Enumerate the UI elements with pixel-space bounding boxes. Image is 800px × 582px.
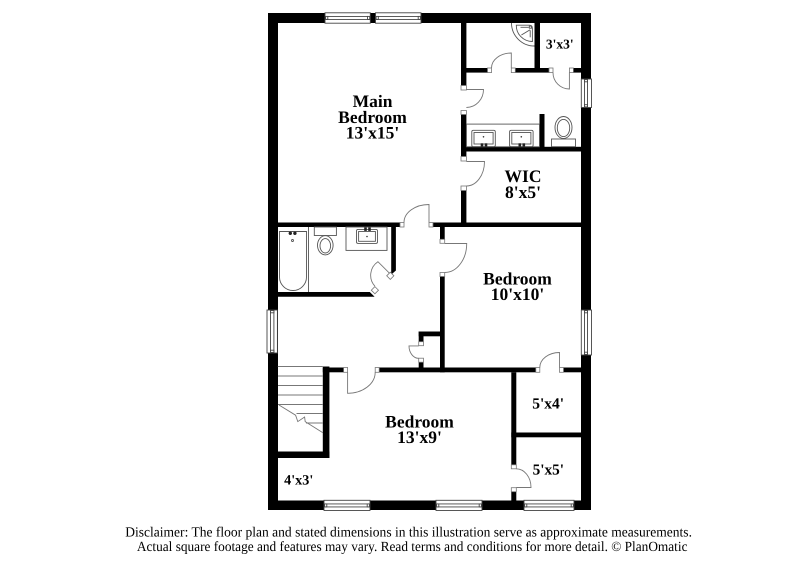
svg-text:13'x9': 13'x9' (397, 427, 442, 447)
svg-text:4'x3': 4'x3' (284, 472, 313, 488)
svg-text:5'x5': 5'x5' (533, 462, 564, 479)
svg-text:13'x15': 13'x15' (346, 123, 399, 143)
svg-text:3'x3': 3'x3' (546, 37, 574, 52)
svg-text:Disclaimer: The floor plan and: Disclaimer: The floor plan and stated di… (125, 526, 692, 541)
svg-text:8'x5': 8'x5' (505, 182, 541, 202)
svg-text:10'x10': 10'x10' (491, 284, 544, 304)
svg-text:Actual square footage and feat: Actual square footage and features may v… (137, 540, 688, 555)
svg-text:5'x4': 5'x4' (532, 395, 564, 412)
